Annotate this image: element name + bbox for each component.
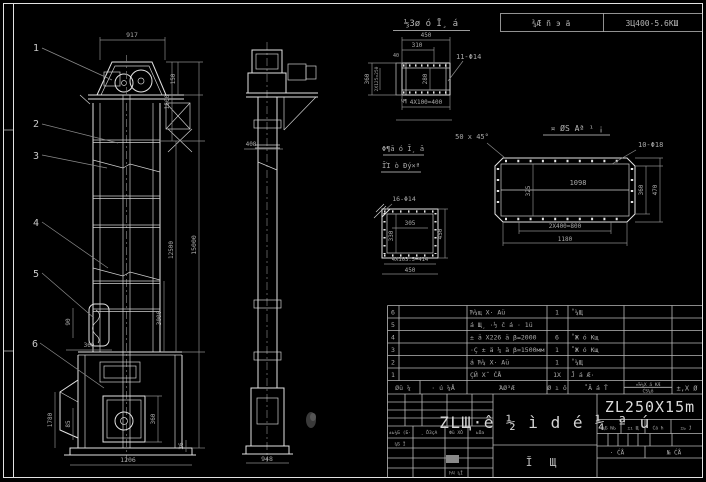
dim-15000: 15000 xyxy=(190,235,198,255)
header-right-label: ЗЦ400-5.6КШ xyxy=(626,19,679,28)
drawing-subtitle-char2: Щ xyxy=(550,456,557,469)
dim-b-2x400: 2Х400=800 xyxy=(549,223,582,230)
detail-b-title: ¤ ØЅ Аª ¹ ¡ xyxy=(551,123,604,133)
tb-right-header1: ¼Б ЊЬ xyxy=(602,426,616,432)
dim-150: 150 xyxy=(170,73,177,84)
detail-a-linework xyxy=(368,37,463,120)
dim-1780: 1780 xyxy=(47,412,54,427)
bom-row-no: 4 xyxy=(391,334,395,342)
drawing-model-number: ZL250X15m xyxy=(605,398,695,416)
drawing-subtitle-char1: Ĭ xyxy=(526,456,533,469)
bom-row-qty: 1Х xyxy=(553,371,561,379)
bom-footer-col3: ΆØ³Æ xyxy=(499,384,515,392)
bom-row-no: 2 xyxy=(391,359,395,367)
bom-footer-col6-bottom: ĆЅ¼ô xyxy=(642,388,653,395)
cad-drawing: ⅓Зø ó Ī¸ á ¾Æ ñ э ä ЗЦ400-5.6КШ xyxy=(0,0,706,482)
detail-c-title-line2: ĪΊ ò Ðý×ª xyxy=(382,161,420,170)
dim-a-holes: 11-Φ14 xyxy=(456,53,481,61)
detail-b-chamfer-note: 50 x 45° xyxy=(455,133,489,141)
bom-row-no: 1 xyxy=(391,371,395,379)
tb-right-header4: ±ь Ĵ xyxy=(680,424,691,432)
dim-a-4x100: 4Х100=400 xyxy=(410,99,443,106)
dim-917: 917 xyxy=(126,31,138,39)
bom-row-name: ± ä Х226 ä β=2000 xyxy=(470,334,537,342)
header-left-label: ⅓Зø ó Ī¸ á xyxy=(404,18,458,29)
bom-row-no: 3 xyxy=(391,346,395,354)
dim-a-310: 310 xyxy=(412,42,423,49)
sign-cell-c: Фü ХŎ xyxy=(449,429,463,436)
detail-b-dimensions: ¤ ØЅ Аª ¹ ¡ 50 x 45° 10-Φ18 1098 325 360… xyxy=(455,123,663,243)
dim-a-450: 450 xyxy=(421,32,432,39)
dim-a-2x125: 2Х125=250 xyxy=(374,66,380,91)
bom-row-material: ˚Ж ó Кщ xyxy=(571,334,598,342)
dim-b-360: 360 xyxy=(638,184,645,195)
bom-row-material: ˚Ж ó Кщ xyxy=(571,346,598,354)
front-view-linework xyxy=(60,55,196,462)
dim-b-holes: 10-Φ18 xyxy=(638,141,663,149)
bom-row-qty: 1 xyxy=(555,309,559,317)
detail-c-title-line1: Φ¶ā ó Ī¸ ā xyxy=(382,144,424,153)
dim-b-470: 470 xyxy=(652,184,659,195)
dim-c-305: 305 xyxy=(405,220,416,227)
balloon-4: 4 xyxy=(33,218,39,229)
dim-c-450-bottom: 450 xyxy=(405,267,416,274)
bom-row-material: ˚¼Щ xyxy=(571,309,583,317)
dim-1500: 1500 xyxy=(164,94,171,109)
dim-3000: 3000 xyxy=(156,310,163,325)
bom-footer-col5: ˚Ā á Ť xyxy=(584,383,608,392)
sign-cell-a: ±ь¼Б (Б· xyxy=(389,430,411,436)
dim-b-1098: 1098 xyxy=(570,179,587,187)
tb-sheet-number: № ĆÅ xyxy=(667,450,682,457)
bom-row-no: 5 xyxy=(391,321,395,329)
bom-row-qty: 1 xyxy=(555,346,559,354)
cad-drawing-viewport[interactable]: ⅓Зø ó Ī¸ á ¾Æ ñ э ä ЗЦ400-5.6КШ xyxy=(0,0,706,482)
sign-cell-b: ¸ ĎЗçА xyxy=(421,428,438,436)
screen-smudge xyxy=(306,412,316,428)
bom-footer-col4: Ø ı ô xyxy=(547,384,567,392)
dim-a-40: 40 xyxy=(393,53,399,59)
dim-360-door: 360 xyxy=(84,342,95,349)
bom-row-no: 6 xyxy=(391,309,395,317)
bom-row-name: ·Ç ± ä ¼ ä β=1500мм xyxy=(470,346,544,354)
tb-right-header3: Ćā ħ xyxy=(652,425,663,432)
tb-right-header2: ±ı Щ xyxy=(627,426,638,432)
balloon-3: 3 xyxy=(33,151,39,162)
dim-1206: 1206 xyxy=(120,456,136,464)
bom-row-material: Ĵ á Æ· xyxy=(571,370,594,379)
bom-row-name: ÇЙ Х˝ ĆÅ xyxy=(470,370,501,379)
bom-row-material: ˚¼Щ xyxy=(571,359,583,367)
dim-a-360: 360 xyxy=(364,73,371,84)
dim-408: 408 xyxy=(246,141,257,148)
bom-table: 6 Ћ¼щ Х· Аü 1 ˚¼Щ 5 á Щ¸ ·½ č á · 1ü 4 ±… xyxy=(388,306,703,395)
header-strip: ⅓Зø ó Ī¸ á ¾Æ ñ э ä ЗЦ400-5.6КШ xyxy=(393,14,703,32)
dim-a-280: 280 xyxy=(422,73,429,84)
side-view-linework xyxy=(242,42,318,463)
balloon-5: 5 xyxy=(33,269,39,280)
bom-footer-col7: ±,Х Ø xyxy=(676,385,698,393)
dim-c-holes: 16-Φ14 xyxy=(392,195,416,203)
bom-footer-col6-top: ¤Ћ¼Х ä КÆ xyxy=(636,382,661,388)
dim-360-boot: 360 xyxy=(150,413,157,424)
bom-row-qty: 6 xyxy=(555,334,559,342)
highlighted-cell xyxy=(446,455,459,463)
dim-c-4x103: 4Х103.5=414 xyxy=(392,257,429,263)
balloon-1: 1 xyxy=(33,43,39,54)
dim-c-450-right: 450 xyxy=(437,228,444,239)
sign-cell-f: ħЧ ¼Ĭ xyxy=(449,469,463,477)
bom-row-name: Ћ¼щ Х· Аü xyxy=(469,309,505,317)
sign-cell-e: ¼Б Ĭ xyxy=(394,440,405,448)
title-block: ZLЩ·ê ½ ì d é ¼ ª ú ZL250X15m Ĭ Щ ±ь¼Б (… xyxy=(388,394,703,478)
bom-row-qty: 1 xyxy=(555,359,559,367)
bom-footer-col1: Øü ¼ xyxy=(395,384,411,392)
dim-b-325: 325 xyxy=(525,185,532,196)
bom-footer-col2: · ú ¼Å xyxy=(431,383,455,392)
sign-cell-d: ьŌа xyxy=(476,429,485,436)
dim-85: 85 xyxy=(65,420,72,428)
balloon-2: 2 xyxy=(33,119,39,130)
dim-90: 90 xyxy=(65,318,72,326)
bom-row-name: á Ћ¼ Х· Аü xyxy=(470,359,509,367)
drawing-frame xyxy=(3,4,703,478)
dim-26: 26 xyxy=(178,442,185,450)
dim-c-330: 330 xyxy=(388,230,395,241)
dim-12500: 12500 xyxy=(168,241,175,259)
header-center-label: ¾Æ ñ э ä xyxy=(532,19,571,28)
dim-948: 948 xyxy=(261,455,273,463)
tb-sheet-count: · ĆÅ xyxy=(610,450,625,457)
dim-b-1180: 1180 xyxy=(558,236,573,243)
side-view-dimensions: 408 948 xyxy=(246,141,273,463)
bom-row-name: á Щ¸ ·½ č á · 1ü xyxy=(470,321,533,329)
detail-a-weld-mark: Ч¶ xyxy=(401,99,407,105)
balloon-6: 6 xyxy=(32,339,38,350)
